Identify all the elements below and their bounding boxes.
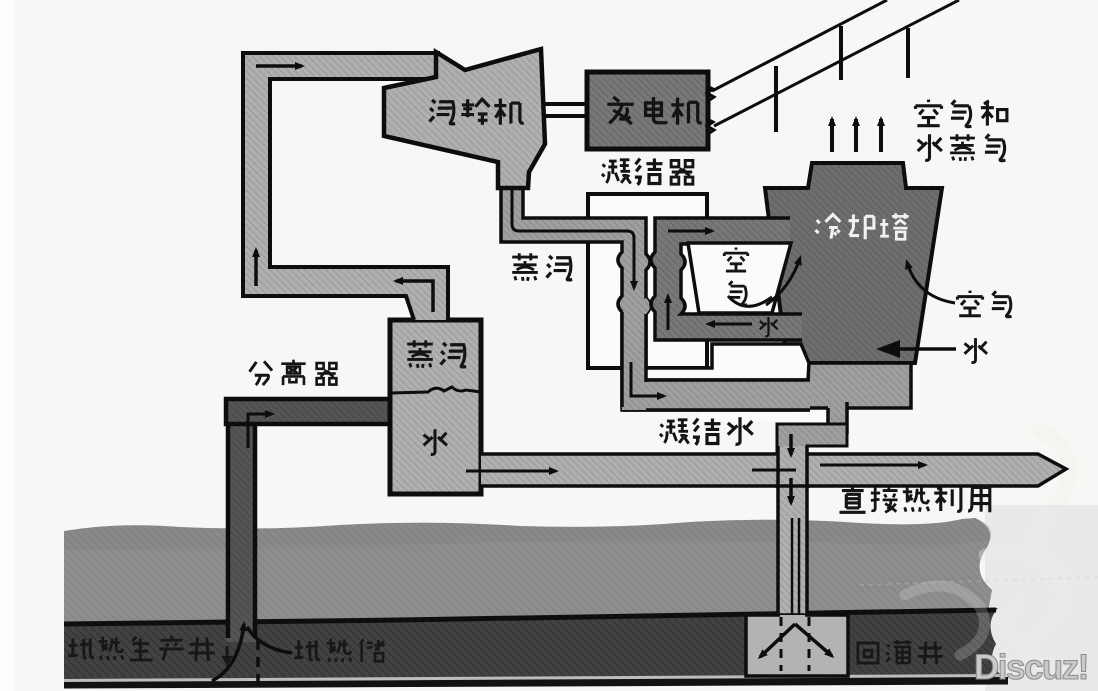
svg-text:Discuz!: Discuz! [974,648,1088,687]
